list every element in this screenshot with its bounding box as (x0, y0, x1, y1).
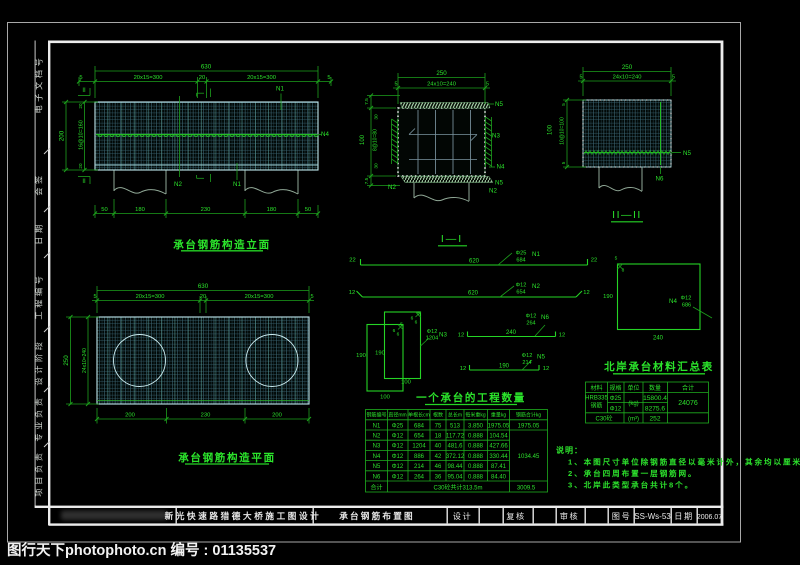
svg-text:8275.6: 8275.6 (645, 406, 666, 413)
svg-text:2006.07: 2006.07 (697, 514, 722, 521)
svg-text:C30砼: C30砼 (595, 415, 612, 423)
svg-text:Φ12: Φ12 (522, 353, 533, 359)
svg-text:0.888: 0.888 (468, 474, 484, 480)
svg-text:材料: 材料 (590, 384, 602, 392)
svg-text:N2: N2 (373, 434, 381, 440)
svg-text:SS-Ws-53: SS-Ws-53 (634, 512, 671, 521)
svg-text:42: 42 (435, 454, 442, 460)
svg-text:1975.05: 1975.05 (488, 423, 510, 429)
svg-text:N2: N2 (489, 188, 497, 195)
svg-text:214: 214 (414, 464, 425, 470)
svg-text:N2: N2 (174, 181, 182, 188)
svg-text:根数: 根数 (433, 412, 443, 419)
svg-text:N6: N6 (373, 474, 381, 480)
svg-text:0.888: 0.888 (468, 464, 484, 470)
svg-text:II—II: II—II (612, 209, 642, 221)
svg-text:N3: N3 (373, 444, 381, 450)
svg-text:Φ12: Φ12 (392, 464, 404, 470)
svg-text:5: 5 (615, 256, 618, 262)
svg-text:新光快速路猎德大桥施工图设计: 新光快速路猎德大桥施工图设计 (165, 510, 322, 521)
svg-text:I—I: I—I (441, 233, 463, 245)
svg-text:1975.05: 1975.05 (518, 423, 540, 429)
svg-text:20: 20 (78, 103, 83, 109)
svg-text:5: 5 (561, 161, 566, 164)
svg-text:180: 180 (135, 207, 145, 213)
svg-text:Φ25: Φ25 (392, 423, 404, 429)
svg-text:250: 250 (436, 70, 447, 77)
svg-text:24x10=240: 24x10=240 (82, 348, 88, 373)
svg-text:427.66: 427.66 (489, 444, 508, 450)
svg-text:6: 6 (411, 316, 414, 322)
svg-text:N6: N6 (656, 176, 664, 183)
svg-text:复核: 复核 (506, 511, 525, 521)
svg-text:Φ12: Φ12 (392, 444, 404, 450)
svg-text:20x15=300: 20x15=300 (136, 294, 165, 300)
svg-text:Φ12: Φ12 (392, 434, 404, 440)
svg-text:24x10=240: 24x10=240 (613, 75, 642, 81)
svg-text:Φ12: Φ12 (516, 283, 527, 289)
svg-text:说明：: 说明： (556, 445, 583, 455)
svg-text:190: 190 (499, 364, 510, 370)
svg-text:II: II (82, 88, 86, 94)
svg-text:18: 18 (435, 434, 442, 440)
svg-text:合计: 合计 (370, 483, 382, 491)
svg-text:N5: N5 (373, 464, 381, 470)
svg-text:22: 22 (349, 258, 355, 264)
svg-text:N5: N5 (683, 150, 691, 157)
svg-text:N1: N1 (276, 86, 284, 93)
svg-text:N5: N5 (495, 179, 503, 186)
svg-text:1204: 1204 (412, 444, 426, 450)
svg-text:1034.45: 1034.45 (518, 454, 540, 460)
svg-text:190: 190 (375, 351, 385, 357)
svg-text:686: 686 (682, 303, 691, 309)
svg-text:22: 22 (591, 258, 597, 264)
svg-text:250: 250 (63, 355, 70, 366)
svg-text:12: 12 (583, 290, 589, 296)
svg-text:设计阶段: 设计阶段 (34, 338, 44, 385)
svg-text:330.44: 330.44 (489, 454, 508, 460)
svg-text:100: 100 (548, 124, 554, 135)
svg-text:Φ12: Φ12 (610, 407, 622, 413)
svg-text:重量kg: 重量kg (491, 412, 507, 419)
svg-text:N2: N2 (532, 283, 540, 290)
svg-text:总长m: 总长m (448, 412, 462, 419)
svg-text:12: 12 (349, 290, 355, 296)
svg-text:N4: N4 (669, 298, 677, 305)
svg-text:Φ12: Φ12 (392, 474, 404, 480)
svg-text:N4: N4 (321, 131, 329, 138)
svg-text:75: 75 (435, 423, 442, 429)
svg-text:240: 240 (506, 330, 517, 336)
svg-text:北岸承台材料汇总表: 北岸承台材料汇总表 (604, 360, 714, 373)
svg-text:Φ25: Φ25 (610, 396, 622, 402)
svg-text:620: 620 (469, 259, 480, 265)
svg-text:直径mm: 直径mm (388, 412, 406, 419)
svg-text:专业负责: 专业负责 (34, 394, 44, 441)
svg-text:117.72: 117.72 (446, 434, 465, 440)
svg-text:200: 200 (59, 130, 66, 141)
svg-text:0.888: 0.888 (468, 434, 484, 440)
svg-text:Φ12: Φ12 (392, 454, 404, 460)
svg-text:104.54: 104.54 (489, 434, 508, 440)
svg-text:36: 36 (435, 474, 442, 480)
svg-text:5: 5 (400, 322, 403, 328)
svg-text:7.5: 7.5 (364, 98, 370, 105)
svg-text:0.888: 0.888 (468, 444, 484, 450)
svg-text:180: 180 (267, 207, 277, 213)
svg-text:钢筋编号: 钢筋编号 (366, 412, 386, 419)
svg-text:5: 5 (395, 82, 398, 88)
svg-text:电子文档号: 电子文档号 (34, 55, 44, 114)
svg-text:承台钢筋布置图: 承台钢筋布置图 (339, 510, 415, 521)
svg-text:12: 12 (543, 366, 549, 372)
svg-text:20: 20 (200, 294, 206, 300)
svg-text:单位: 单位 (627, 384, 639, 392)
svg-text:264: 264 (414, 474, 425, 480)
svg-text:98.44: 98.44 (447, 464, 463, 470)
svg-text:20: 20 (199, 75, 205, 81)
svg-text:(kg): (kg) (628, 401, 638, 407)
svg-text:合计: 合计 (682, 384, 694, 392)
svg-text:会签: 会签 (34, 172, 44, 196)
svg-text:50: 50 (305, 207, 311, 213)
svg-text:承台钢筋构造立面: 承台钢筋构造立面 (173, 238, 271, 251)
svg-text:30: 30 (374, 163, 380, 169)
svg-text:N3: N3 (492, 132, 500, 139)
svg-text:5: 5 (561, 103, 566, 106)
svg-text:12: 12 (460, 366, 466, 372)
svg-text:2、承台四周布置一层钢筋网。: 2、承台四周布置一层钢筋网。 (568, 468, 698, 478)
svg-text:日期: 日期 (35, 221, 44, 245)
svg-text:620: 620 (468, 291, 479, 297)
svg-text:214: 214 (522, 360, 531, 366)
svg-text:N4: N4 (497, 164, 505, 171)
svg-text:数量: 数量 (649, 384, 661, 392)
svg-text:40: 40 (435, 444, 442, 450)
svg-text:1、本图尺寸单位除钢筋直径以毫米计外，其余均以厘米计。: 1、本图尺寸单位除钢筋直径以毫米计外，其余均以厘米计。 (568, 457, 800, 467)
svg-text:N6: N6 (541, 314, 549, 321)
svg-text:15800.4: 15800.4 (643, 395, 667, 402)
svg-text:20x15=300: 20x15=300 (247, 75, 276, 81)
svg-text:190: 190 (603, 294, 613, 300)
svg-text:承台钢筋构造平面: 承台钢筋构造平面 (178, 451, 276, 464)
svg-text:230: 230 (201, 207, 211, 213)
svg-text:95.04: 95.04 (447, 474, 463, 480)
svg-text:886: 886 (414, 454, 425, 460)
svg-text:设计: 设计 (453, 511, 472, 521)
svg-text:1204: 1204 (426, 336, 438, 342)
svg-text:5: 5 (672, 75, 675, 81)
svg-text:项目负责: 项目负责 (34, 449, 44, 496)
svg-text:87.41: 87.41 (491, 464, 507, 470)
svg-text:250: 250 (622, 64, 633, 71)
svg-text:N3: N3 (439, 332, 447, 339)
svg-text:N1: N1 (233, 181, 241, 188)
svg-text:一个承台的工程数量: 一个承台的工程数量 (416, 391, 526, 404)
svg-text:3.850: 3.850 (468, 423, 484, 429)
svg-text:100: 100 (401, 380, 411, 386)
svg-text:3009.5: 3009.5 (517, 485, 536, 491)
svg-text:6: 6 (393, 328, 396, 334)
svg-text:5: 5 (486, 82, 489, 88)
svg-text:654: 654 (414, 434, 425, 440)
svg-text:N5: N5 (537, 354, 545, 361)
svg-text:654: 654 (516, 290, 525, 296)
svg-text:8: 8 (622, 268, 625, 274)
svg-text:HRB335: HRB335 (585, 396, 608, 402)
svg-text:8@10=80: 8@10=80 (373, 129, 379, 151)
svg-text:图号: 图号 (612, 512, 631, 521)
svg-text:(m³): (m³) (628, 417, 639, 423)
svg-text:单根长cm: 单根长cm (408, 412, 430, 419)
svg-text:5: 5 (580, 75, 583, 81)
svg-text:200: 200 (272, 413, 282, 419)
svg-text:II: II (82, 179, 86, 185)
svg-text:190: 190 (356, 353, 366, 359)
svg-text:6: 6 (415, 320, 418, 326)
svg-text:钢筋合计kg: 钢筋合计kg (516, 412, 542, 419)
svg-text:7.5: 7.5 (364, 177, 370, 184)
svg-text:每米重kg: 每米重kg (465, 412, 486, 419)
svg-text:481.6: 481.6 (447, 444, 463, 450)
svg-text:N1: N1 (373, 423, 381, 429)
svg-text:审核: 审核 (560, 511, 579, 521)
svg-text:252: 252 (649, 416, 660, 423)
svg-text:日期: 日期 (674, 512, 693, 521)
svg-text:50: 50 (101, 207, 107, 213)
svg-text:10@10=100: 10@10=100 (560, 117, 566, 145)
svg-text:C30砼共计313.5m: C30砼共计313.5m (433, 483, 482, 491)
svg-text:230: 230 (201, 413, 211, 419)
svg-text:5: 5 (79, 75, 82, 81)
svg-text:16@10=160: 16@10=160 (79, 120, 85, 150)
svg-text:5: 5 (417, 311, 420, 317)
svg-text:工程编号: 工程编号 (34, 272, 44, 319)
svg-text:240: 240 (653, 336, 664, 342)
svg-text:630: 630 (201, 64, 212, 71)
svg-text:20x15=300: 20x15=300 (134, 75, 163, 81)
svg-text:N1: N1 (532, 251, 540, 258)
svg-text:N5: N5 (495, 101, 503, 108)
svg-text:24076: 24076 (678, 400, 698, 407)
svg-text:N2: N2 (388, 184, 396, 191)
svg-text:5: 5 (327, 75, 330, 81)
svg-text:N4: N4 (373, 454, 381, 460)
svg-text:46: 46 (435, 464, 442, 470)
svg-text:5: 5 (93, 294, 96, 300)
svg-text:Φ12: Φ12 (681, 296, 692, 302)
svg-text:630: 630 (198, 283, 209, 290)
svg-text:684: 684 (516, 258, 525, 264)
svg-text:钢筋: 钢筋 (590, 402, 602, 410)
svg-text:84.40: 84.40 (491, 474, 507, 480)
svg-text:513: 513 (450, 423, 461, 429)
svg-text:图行天下photophoto.cn 编号 : 011355: 图行天下photophoto.cn 编号 : 01135537 (7, 541, 276, 559)
svg-text:3、北岸此类型承台共计8个。: 3、北岸此类型承台共计8个。 (568, 480, 694, 490)
svg-text:规格: 规格 (609, 384, 621, 392)
svg-text:Φ12: Φ12 (427, 329, 438, 335)
svg-text:100: 100 (360, 134, 366, 145)
svg-text:100: 100 (380, 395, 390, 401)
svg-text:200: 200 (125, 413, 135, 419)
svg-text:0.888: 0.888 (468, 454, 484, 460)
svg-text:12: 12 (458, 333, 464, 339)
svg-text:Φ25: Φ25 (516, 251, 527, 257)
svg-text:30: 30 (374, 114, 380, 120)
svg-text:264: 264 (526, 321, 535, 327)
svg-text:Φ12: Φ12 (526, 314, 537, 320)
svg-text:372.12: 372.12 (446, 454, 465, 460)
svg-text:684: 684 (414, 423, 425, 429)
svg-text:12: 12 (559, 333, 565, 339)
svg-text:5: 5 (310, 294, 313, 300)
svg-text:20x15=300: 20x15=300 (245, 294, 274, 300)
svg-text:24x10=240: 24x10=240 (427, 82, 456, 88)
svg-text:20: 20 (78, 163, 83, 169)
svg-text:6: 6 (397, 332, 400, 338)
